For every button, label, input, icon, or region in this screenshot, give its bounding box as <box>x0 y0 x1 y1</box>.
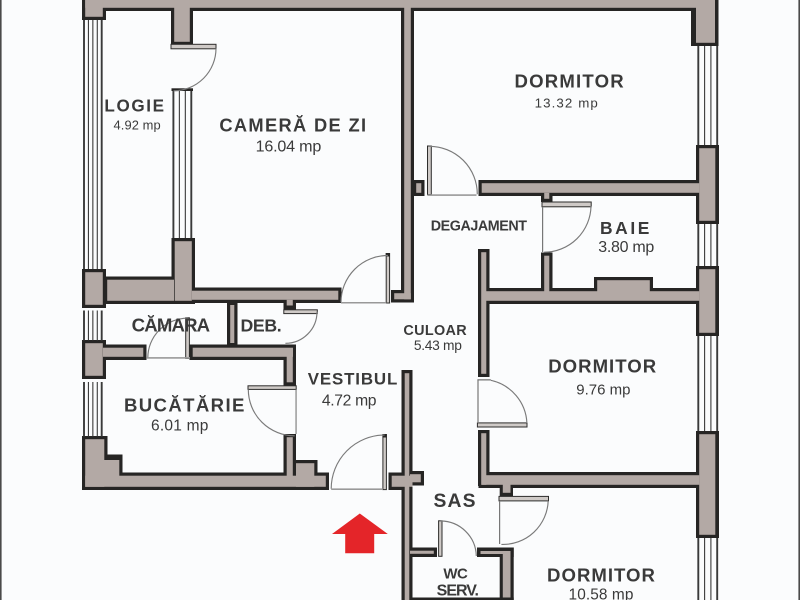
svg-text:4.72 mp: 4.72 mp <box>322 393 377 410</box>
svg-text:DORMITOR: DORMITOR <box>548 355 657 376</box>
svg-text:VESTIBUL: VESTIBUL <box>308 369 398 388</box>
svg-text:DEGAJAMENT: DEGAJAMENT <box>431 219 527 235</box>
svg-text:4.92 mp: 4.92 mp <box>114 118 161 133</box>
svg-text:DORMITOR: DORMITOR <box>514 70 625 91</box>
svg-text:SAS: SAS <box>433 491 476 512</box>
svg-text:10.58 mp: 10.58 mp <box>569 587 634 600</box>
svg-text:DEB.: DEB. <box>240 316 281 336</box>
svg-text:BUCĂTĂRIE: BUCĂTĂRIE <box>124 395 246 416</box>
svg-text:DORMITOR: DORMITOR <box>547 565 656 586</box>
svg-text:16.04 mp: 16.04 mp <box>256 138 322 156</box>
svg-text:13.32 mp: 13.32 mp <box>535 96 599 111</box>
svg-text:5.43 mp: 5.43 mp <box>414 338 462 353</box>
svg-text:CULOAR: CULOAR <box>403 323 467 339</box>
svg-text:WC: WC <box>443 566 468 583</box>
svg-text:CĂMARA: CĂMARA <box>132 315 210 336</box>
svg-text:3.80 mp: 3.80 mp <box>598 239 654 256</box>
svg-text:CAMERĂ DE ZI: CAMERĂ DE ZI <box>219 114 367 135</box>
svg-text:BAIE: BAIE <box>600 218 652 238</box>
svg-text:9.76 mp: 9.76 mp <box>576 382 630 399</box>
svg-text:6.01 mp: 6.01 mp <box>151 418 209 435</box>
svg-text:SERV.: SERV. <box>437 582 479 599</box>
svg-text:LOGIE: LOGIE <box>104 97 165 116</box>
